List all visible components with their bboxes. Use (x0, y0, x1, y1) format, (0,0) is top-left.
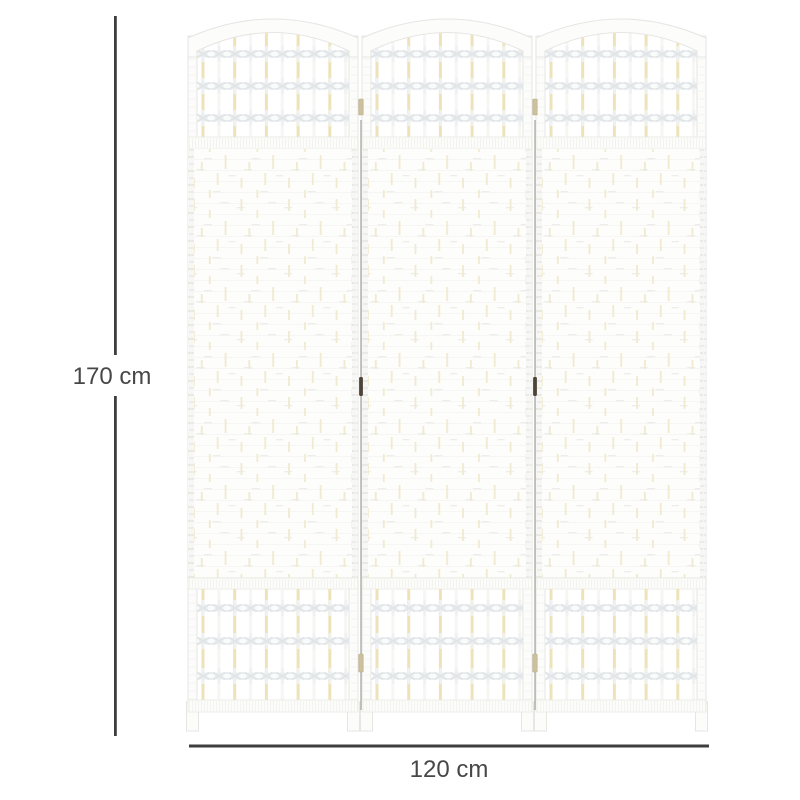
svg-text:120 cm: 120 cm (410, 756, 489, 783)
svg-text:170 cm: 170 cm (73, 363, 152, 390)
